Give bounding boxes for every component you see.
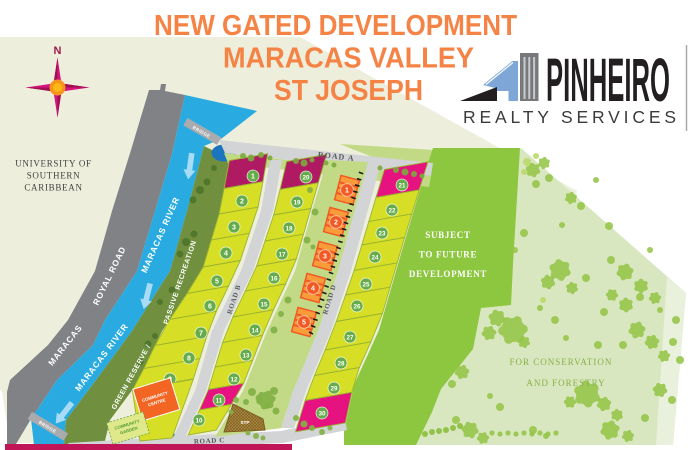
svg-text:STP: STP xyxy=(241,420,250,425)
svg-text:13: 13 xyxy=(242,352,250,359)
svg-text:N: N xyxy=(54,45,62,57)
svg-text:TO FUTURE: TO FUTURE xyxy=(419,250,477,260)
svg-text:11: 11 xyxy=(216,397,223,404)
svg-text:ROAD C: ROAD C xyxy=(194,436,225,446)
svg-text:4: 4 xyxy=(311,285,315,292)
svg-text:20: 20 xyxy=(302,174,310,181)
svg-text:8: 8 xyxy=(187,355,191,362)
svg-text:7: 7 xyxy=(199,330,203,337)
svg-text:19: 19 xyxy=(293,199,301,206)
svg-text:30: 30 xyxy=(318,410,326,417)
svg-text:21: 21 xyxy=(398,182,406,189)
svg-text:12: 12 xyxy=(230,376,238,383)
svg-text:2: 2 xyxy=(334,219,338,226)
svg-text:4: 4 xyxy=(224,250,228,257)
svg-text:NEW GATED DEVELOPMENT: NEW GATED DEVELOPMENT xyxy=(154,10,517,42)
svg-text:15: 15 xyxy=(260,301,268,308)
svg-text:UNIVERSITY OF: UNIVERSITY OF xyxy=(15,159,92,169)
svg-text:14: 14 xyxy=(251,327,259,334)
svg-text:MARACAS VALLEY: MARACAS VALLEY xyxy=(223,43,474,75)
svg-text:16: 16 xyxy=(270,275,278,282)
svg-text:SOUTHERN: SOUTHERN xyxy=(27,171,81,181)
svg-text:23: 23 xyxy=(378,230,386,237)
svg-text:24: 24 xyxy=(371,254,379,261)
svg-text:3: 3 xyxy=(232,224,236,231)
svg-text:25: 25 xyxy=(362,281,370,288)
svg-text:26: 26 xyxy=(353,303,361,310)
svg-text:FOR CONSERVATION: FOR CONSERVATION xyxy=(510,357,613,367)
svg-text:ST JOSEPH: ST JOSEPH xyxy=(274,75,423,107)
svg-text:5: 5 xyxy=(215,278,219,285)
svg-text:5: 5 xyxy=(302,319,306,326)
svg-text:27: 27 xyxy=(346,334,354,341)
svg-text:22: 22 xyxy=(388,207,396,214)
svg-text:REALTY SERVICES: REALTY SERVICES xyxy=(463,107,676,127)
svg-text:AND FORESTRY: AND FORESTRY xyxy=(526,378,605,388)
svg-text:DEVELOPMENT: DEVELOPMENT xyxy=(409,269,487,279)
svg-text:1: 1 xyxy=(251,173,255,180)
svg-text:3: 3 xyxy=(323,253,327,260)
svg-text:SUBJECT: SUBJECT xyxy=(425,230,470,240)
svg-text:6: 6 xyxy=(208,303,212,310)
svg-text:PINHEIRO: PINHEIRO xyxy=(546,46,670,114)
svg-text:28: 28 xyxy=(337,360,345,367)
svg-text:29: 29 xyxy=(330,385,338,392)
svg-text:CARIBBEAN: CARIBBEAN xyxy=(24,183,82,193)
svg-text:17: 17 xyxy=(278,251,286,258)
svg-text:2: 2 xyxy=(240,198,244,205)
svg-text:18: 18 xyxy=(285,225,293,232)
svg-text:1: 1 xyxy=(345,187,349,194)
svg-text:10: 10 xyxy=(195,417,203,424)
